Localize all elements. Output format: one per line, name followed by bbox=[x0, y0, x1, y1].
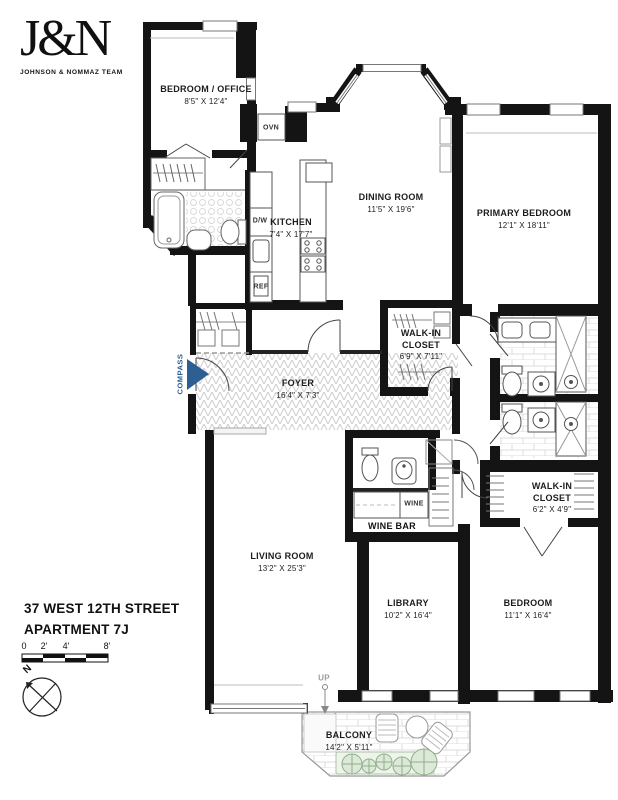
room-label-foyer: FOYER16'4" X 7'3" bbox=[243, 378, 353, 401]
address-line-2: APARTMENT 7J bbox=[24, 619, 179, 640]
room-label-living-room: LIVING ROOM13'2" X 25'3" bbox=[222, 551, 342, 574]
foyer-closet bbox=[196, 312, 246, 346]
logo-tagline: JOHNSON & NOMMAZ TEAM bbox=[20, 69, 106, 76]
brand-logo: J&N JOHNSON & NOMMAZ TEAM bbox=[20, 12, 106, 76]
scale-bar bbox=[22, 654, 108, 662]
balcony-plants bbox=[336, 749, 437, 775]
bay-window bbox=[332, 70, 451, 107]
up-label: UP bbox=[318, 674, 330, 683]
room-label-walk-in-closet-2: WALK-IN CLOSET6'2" X 4'9" bbox=[517, 481, 587, 515]
compass-rose-icon bbox=[23, 678, 61, 716]
room-label-library: LIBRARY10'2" X 16'4" bbox=[358, 598, 458, 621]
room-label-bedroom: BEDROOM11'1" X 16'4" bbox=[478, 598, 578, 621]
scale-tick-8: 8' bbox=[104, 641, 111, 651]
oven-label: OVN bbox=[263, 125, 279, 132]
up-arrow-icon bbox=[321, 685, 329, 715]
compass-brand-label: COMPASS bbox=[176, 354, 185, 395]
scale-tick-2: 2' bbox=[41, 641, 48, 651]
wine-bar-label: WINE BAR bbox=[368, 521, 416, 531]
room-label-kitchen: KITCHEN7'4" X 17'7" bbox=[260, 217, 322, 240]
room-label-balcony: BALCONY14'2" X 5'11" bbox=[299, 730, 399, 753]
logo-mark: J&N bbox=[20, 12, 106, 67]
dishwasher-label: D/W bbox=[253, 218, 268, 225]
scale-tick-0: 0 bbox=[21, 641, 26, 651]
refrigerator-label: REF bbox=[254, 284, 269, 291]
powder-wine-bar bbox=[354, 448, 428, 518]
scale-tick-4: 4' bbox=[63, 641, 70, 651]
room-label-primary-bedroom: PRIMARY BEDROOM12'1" X 18'11" bbox=[454, 208, 594, 231]
wine-label: WINE bbox=[404, 501, 423, 508]
kitchen-fixtures bbox=[250, 114, 332, 302]
floorplan-page: J&N JOHNSON & NOMMAZ TEAM BEDROOM / OFFI… bbox=[0, 0, 618, 800]
room-label-dining-room: DINING ROOM11'5" X 19'6" bbox=[331, 192, 451, 215]
room-label-walk-in-closet-1: WALK-IN CLOSET6'9" X 7'11" bbox=[386, 328, 456, 362]
address-line-1: 37 WEST 12TH STREET bbox=[24, 598, 179, 619]
room-label-bedroom-office: BEDROOM / OFFICE8'5" X 12'4" bbox=[136, 84, 276, 107]
address-block: 37 WEST 12TH STREET APARTMENT 7J bbox=[24, 598, 179, 640]
